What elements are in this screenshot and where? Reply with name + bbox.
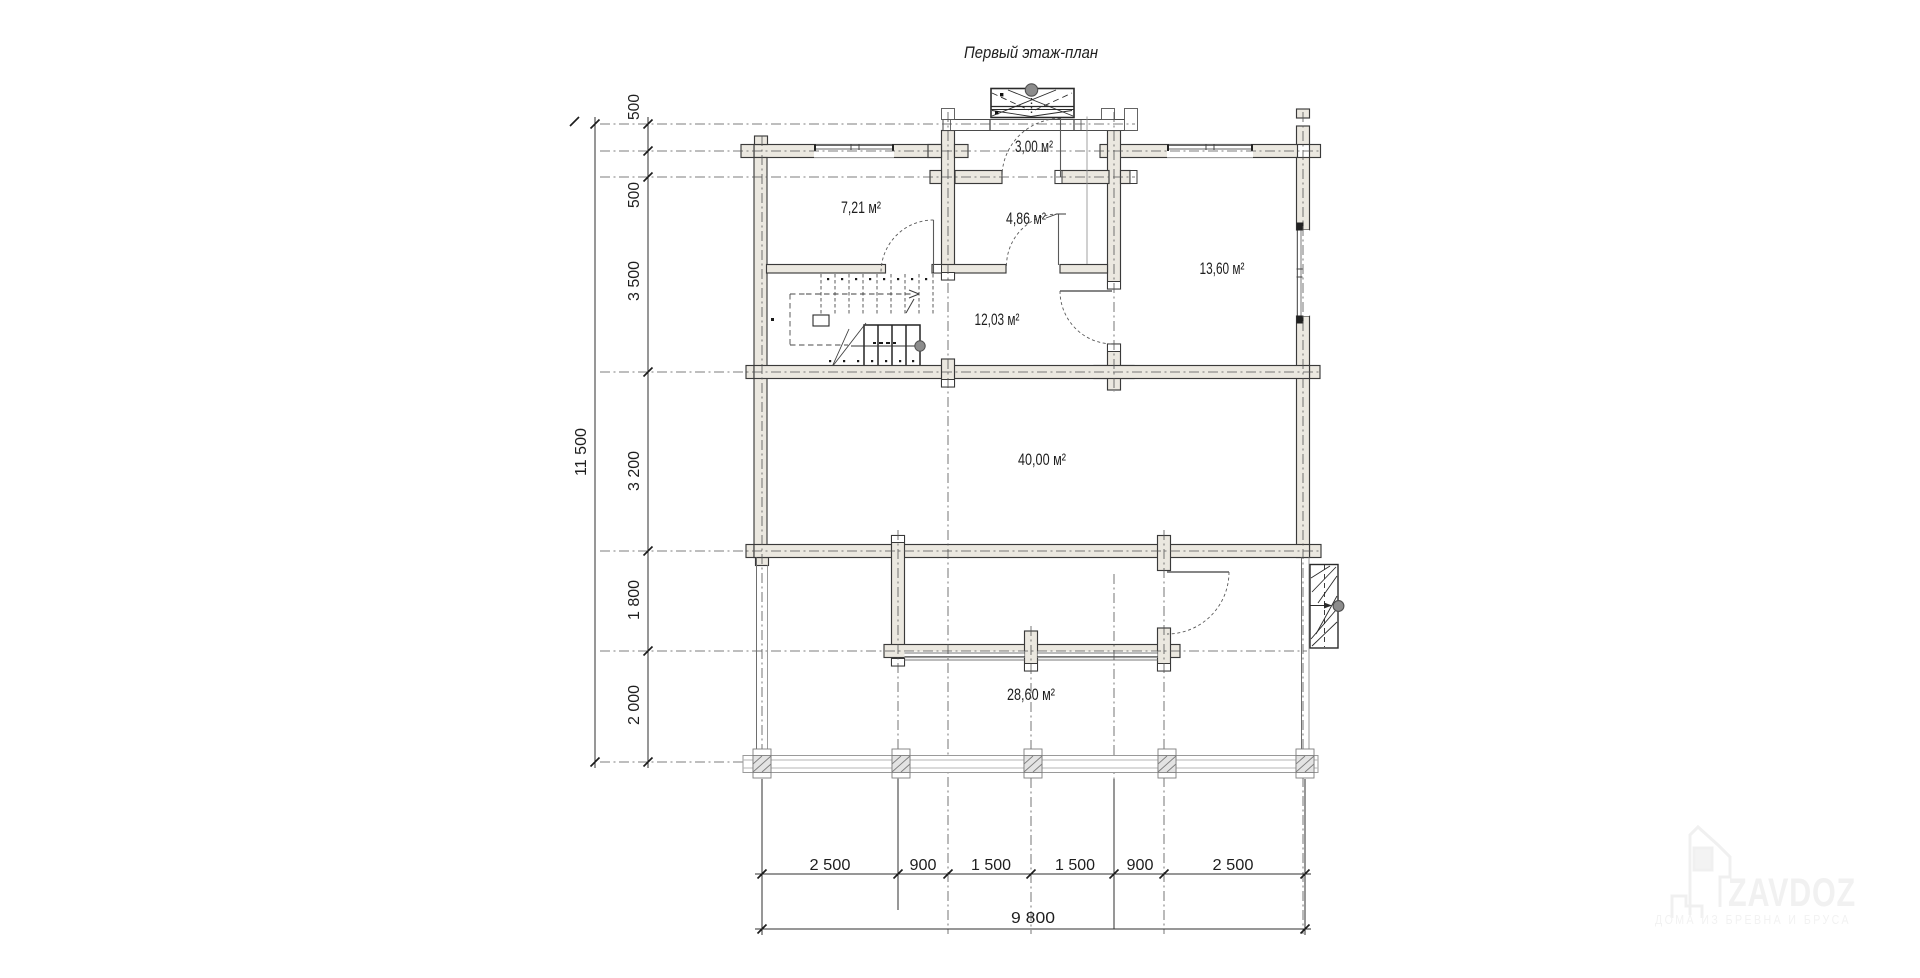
svg-text:13,60 м²: 13,60 м² — [1200, 260, 1245, 278]
svg-text:Первый этаж-план: Первый этаж-план — [964, 43, 1099, 62]
svg-text:9 800: 9 800 — [1011, 910, 1055, 927]
svg-text:ZAVDOZ: ZAVDOZ — [1728, 871, 1856, 915]
svg-text:4,86 м²: 4,86 м² — [1006, 210, 1046, 228]
svg-text:900: 900 — [910, 857, 937, 874]
svg-text:2 500: 2 500 — [810, 857, 851, 874]
svg-text:12,03 м²: 12,03 м² — [975, 311, 1020, 329]
svg-text:500: 500 — [626, 182, 643, 208]
svg-text:900: 900 — [1127, 857, 1154, 874]
svg-text:28,60 м²: 28,60 м² — [1007, 686, 1055, 704]
svg-text:3 500: 3 500 — [626, 261, 643, 301]
svg-text:40,00 м²: 40,00 м² — [1018, 451, 1066, 469]
svg-text:2 000: 2 000 — [626, 685, 643, 725]
svg-text:11 500: 11 500 — [573, 428, 590, 476]
svg-text:500: 500 — [626, 94, 643, 120]
svg-text:ДОМА ИЗ БРЕВНА И БРУСА: ДОМА ИЗ БРЕВНА И БРУСА — [1655, 912, 1851, 927]
svg-text:3 200: 3 200 — [626, 451, 643, 491]
svg-text:1 500: 1 500 — [971, 857, 1011, 874]
svg-text:1 800: 1 800 — [626, 580, 643, 620]
svg-text:2 500: 2 500 — [1213, 857, 1254, 874]
svg-text:1 500: 1 500 — [1055, 857, 1095, 874]
svg-text:3,00 м²: 3,00 м² — [1015, 138, 1053, 156]
svg-text:7,21 м²: 7,21 м² — [841, 199, 881, 217]
